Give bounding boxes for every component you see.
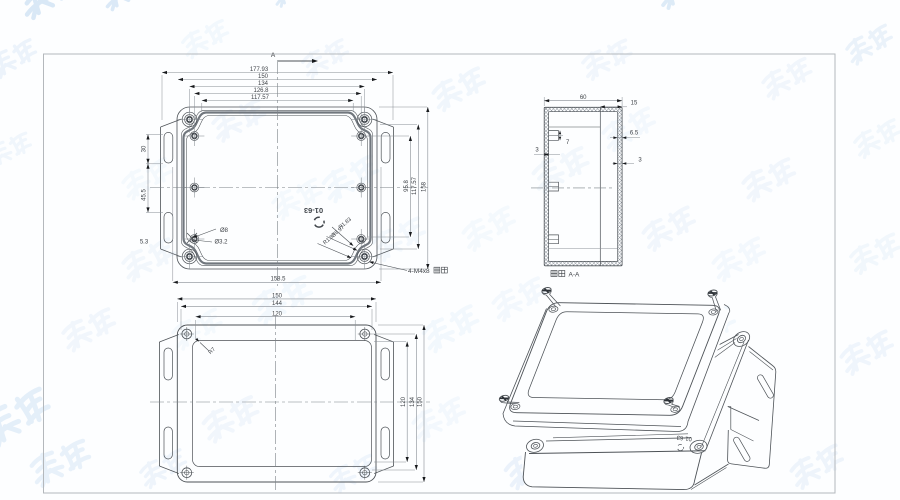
svg-text:117.57: 117.57 <box>251 95 270 101</box>
svg-text:158.5: 158.5 <box>270 277 286 283</box>
svg-text:150: 150 <box>258 74 269 80</box>
svg-text:126.8: 126.8 <box>253 88 269 94</box>
svg-text:177.93: 177.93 <box>250 67 269 73</box>
svg-text:150: 150 <box>272 294 283 300</box>
svg-text:150: 150 <box>418 396 424 407</box>
svg-text:120: 120 <box>401 396 407 407</box>
svg-text:45.5: 45.5 <box>142 189 148 201</box>
svg-text:158: 158 <box>422 181 428 192</box>
svg-text:134: 134 <box>410 396 416 407</box>
svg-text:01-63: 01-63 <box>304 206 323 215</box>
svg-text:A-A: A-A <box>569 272 581 279</box>
svg-text:30: 30 <box>142 145 148 152</box>
svg-text:4-M4x8: 4-M4x8 <box>408 268 430 275</box>
svg-text:5.3: 5.3 <box>140 240 149 246</box>
svg-text:117.57: 117.57 <box>412 176 418 195</box>
svg-text:120: 120 <box>272 311 283 317</box>
svg-text:95.8: 95.8 <box>404 180 410 192</box>
svg-text:60: 60 <box>580 95 587 101</box>
svg-text:Ø8: Ø8 <box>220 228 229 234</box>
svg-text:Ø3.2: Ø3.2 <box>214 240 228 246</box>
svg-text:6.5: 6.5 <box>630 131 639 137</box>
svg-text:15: 15 <box>631 101 638 107</box>
svg-text:A: A <box>271 52 276 59</box>
svg-text:134: 134 <box>258 81 269 87</box>
svg-text:144: 144 <box>272 301 283 307</box>
